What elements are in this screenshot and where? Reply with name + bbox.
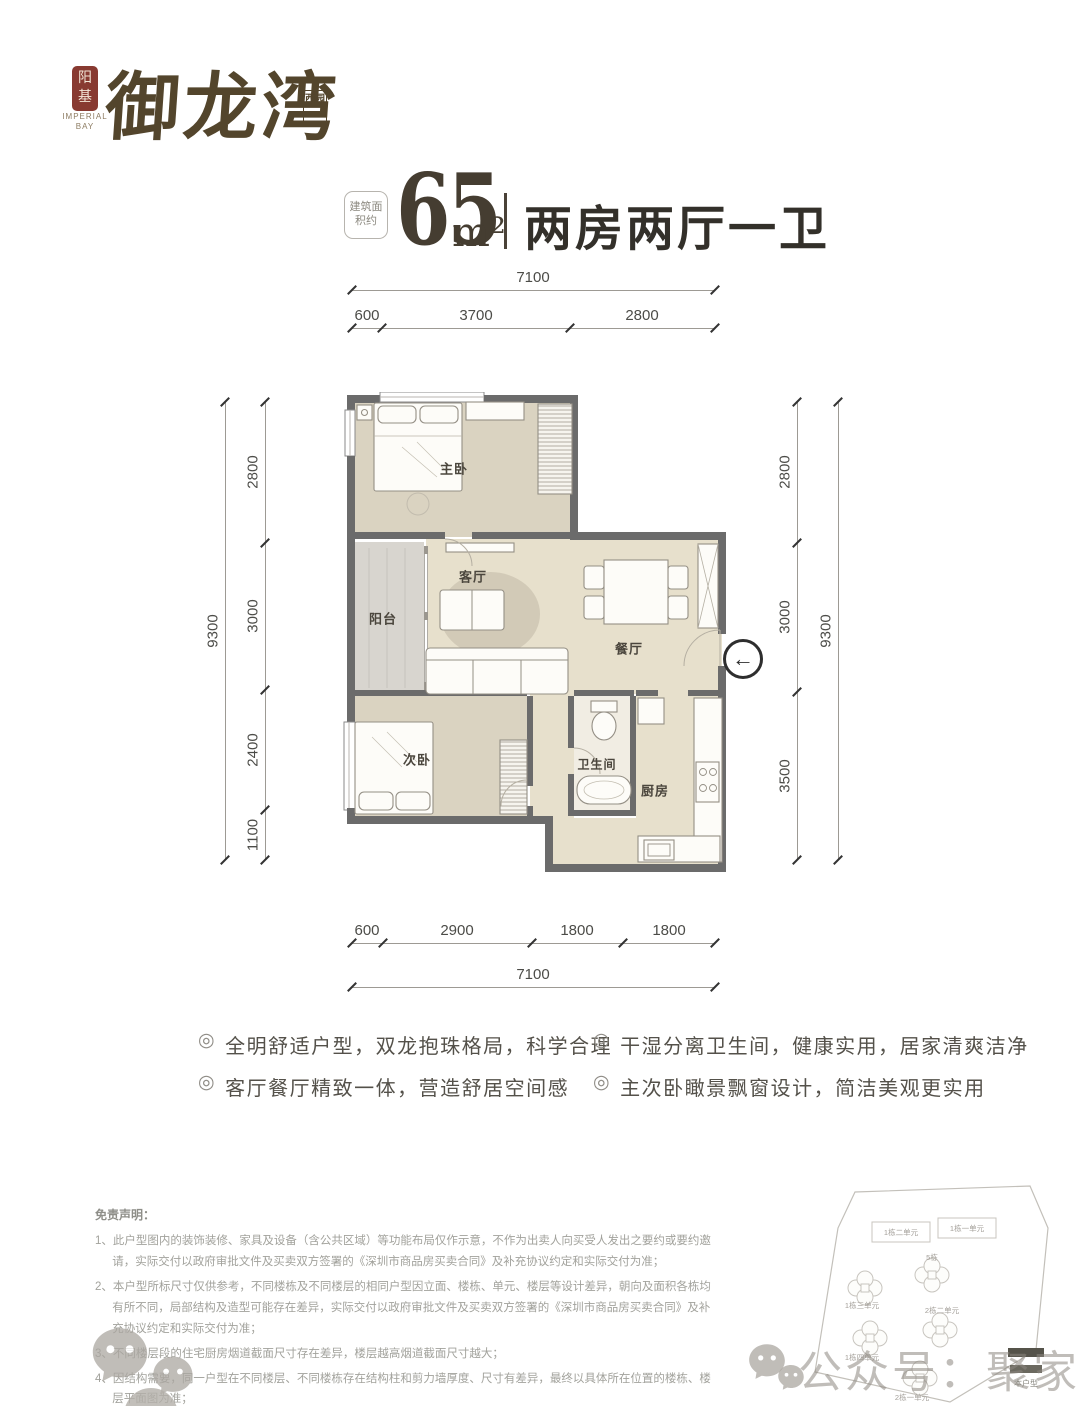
feature-text: 全明舒适户型，双龙抱珠格局，科学合理 [225,1030,612,1059]
floorplan-poster: 阳基 IMPERIAL BAY 御龙湾 西园 建筑面积约 65 m² 两房两厅一… [0,0,1080,1406]
feature-bullet-icon: ◎ [593,1072,611,1095]
developer-seal-logo: 阳基 [72,66,98,111]
area-badge: 建筑面积约 [344,191,388,239]
dim-left-total: 9300 [225,402,226,860]
header-divider [504,193,507,249]
dim-bottom-segments: 600 2900 1800 1800 [352,943,715,944]
feature-bullet-icon: ◎ [593,1030,611,1053]
room-label-dining: 餐厅 [615,639,643,658]
unit-plan-drawing [342,392,732,892]
dim-bottom-total: 7100 [352,987,715,988]
feature-item: ◎ 干湿分离卫生间，健康实用，居家清爽洁净 [593,1030,1029,1059]
dim-top-total: 7100 [352,290,715,291]
project-subname-badge: 西园 [303,90,327,124]
wechat-icon [88,1322,152,1386]
dim-left-segments: 2800 3000 2400 1100 [265,402,266,860]
siteplan-building-label: 1栋二单元 [884,1227,919,1237]
room-label-balcony: 阳台 [369,609,397,628]
siteplan-building-label: 1栋一单元 [950,1223,985,1233]
siteplan-building-label: 2栋二单元 [925,1305,960,1315]
feature-text: 主次卧瞰景飘窗设计，简洁美观更实用 [620,1072,986,1101]
area-unit: m² [452,210,506,256]
room-label-bathroom: 卫生间 [577,756,616,773]
room-label-second-bedroom: 次卧 [403,750,431,769]
unit-layout-title: 两房两厅一卫 [524,189,830,259]
dim-top-segments: 600 3700 2800 [352,328,715,329]
dim-right-total: 9300 [838,402,839,860]
entry-arrow-icon: ← [723,639,763,679]
disclaimer-item: 2、本户型所标尺寸仅供参考，不同楼栋及不同楼层的相同户型因立面、楼栋、单元、楼层… [95,1277,720,1340]
feature-item: ◎ 客厅餐厅精致一体，营造舒居空间感 [198,1072,569,1101]
feature-item: ◎ 主次卧瞰景飘窗设计，简洁美观更实用 [593,1072,986,1101]
watermark-text: 公众号：聚家好房 [798,1336,1080,1400]
feature-text: 客厅餐厅精致一体，营造舒居空间感 [225,1072,569,1101]
wechat-icon [776,1362,806,1392]
feature-bullet-icon: ◎ [198,1072,216,1095]
room-label-kitchen: 厨房 [641,781,669,800]
feature-bullet-icon: ◎ [198,1030,216,1053]
feature-item: ◎ 全明舒适户型，双龙抱珠格局，科学合理 [198,1030,612,1059]
dim-right-segments: 2800 3000 3500 [797,402,798,860]
room-label-master: 主卧 [440,459,468,478]
dim-label: 7100 [516,269,549,286]
siteplan-building-label: 5栋 [926,1252,938,1262]
floorplan-canvas: 7100 600 3700 2800 600 2900 1800 1800 71… [220,265,885,1005]
feature-text: 干湿分离卫生间，健康实用，居家清爽洁净 [620,1030,1029,1059]
siteplan-building-label: 1栋三单元 [845,1300,880,1310]
room-label-living: 客厅 [459,567,487,586]
disclaimer-item: 1、此户型图内的装饰装修、家具及设备（含公共区域）等功能布局仅作示意，不作为出卖… [95,1231,720,1273]
disclaimer-title: 免责声明： [95,1206,720,1223]
